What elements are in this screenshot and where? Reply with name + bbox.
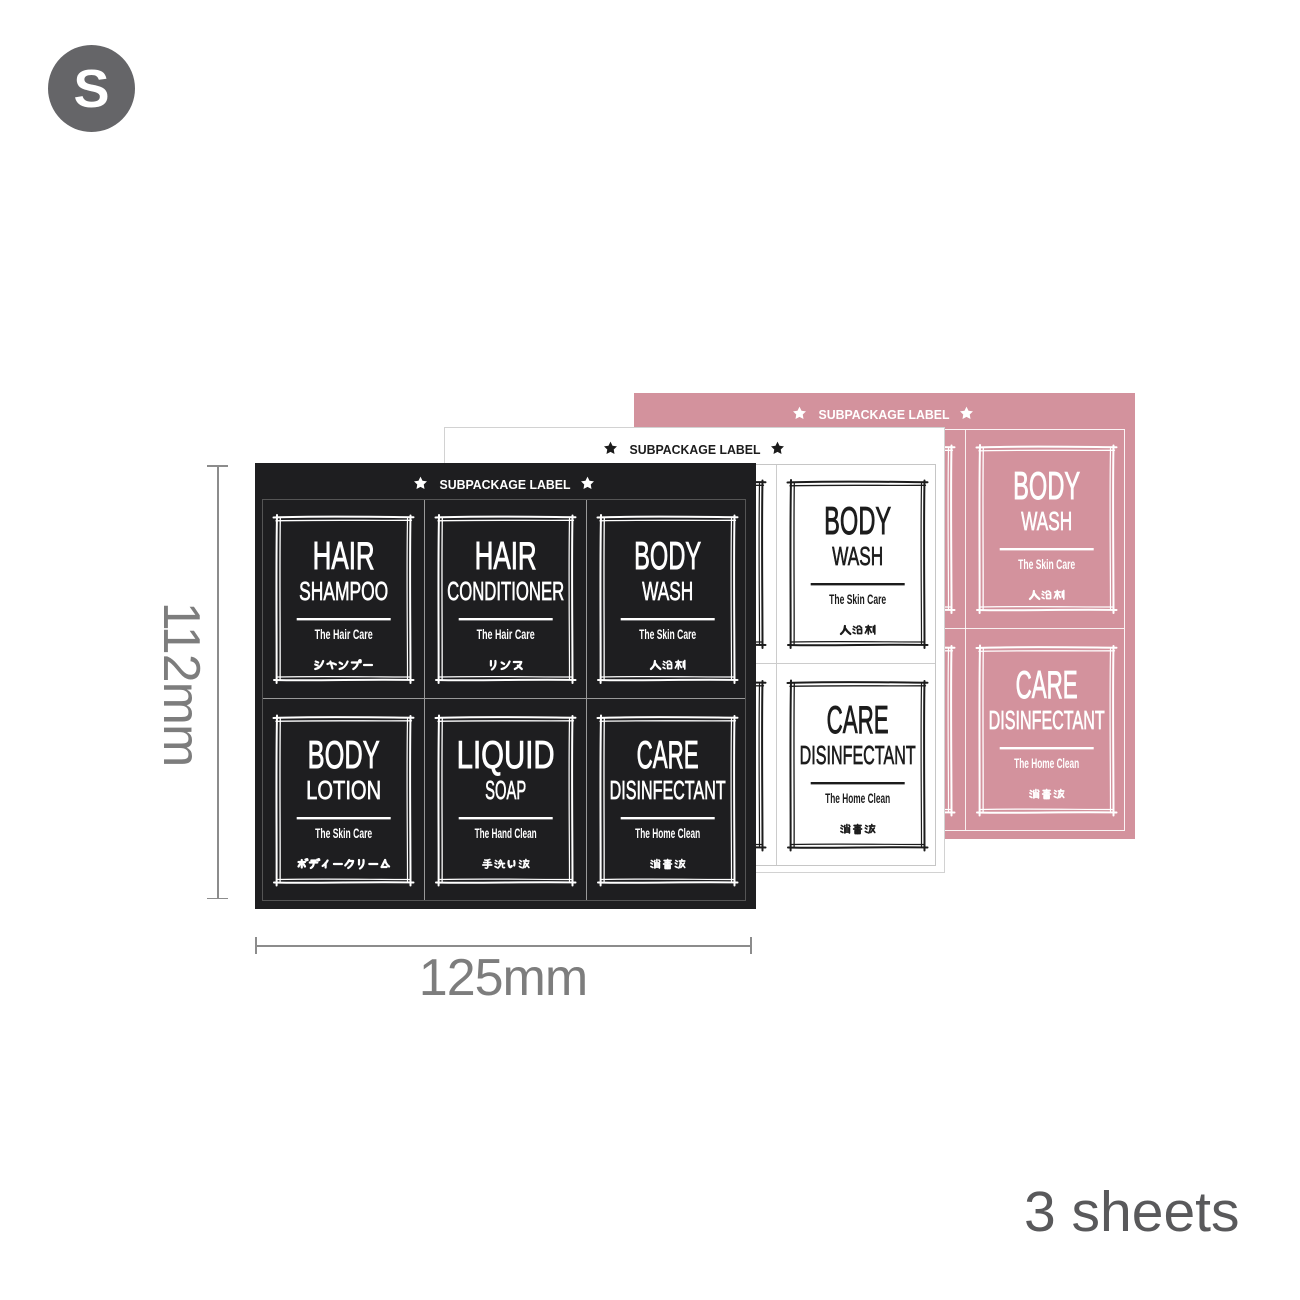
svg-text:CARE: CARE <box>636 734 698 777</box>
svg-text:WASH: WASH <box>1021 506 1072 536</box>
svg-text:The Skin Care: The Skin Care <box>829 592 886 607</box>
svg-text:The Home Clean: The Home Clean <box>1014 756 1079 771</box>
svg-text:SUBPACKAGE LABEL: SUBPACKAGE LABEL <box>630 442 761 457</box>
svg-text:DISINFECTANT: DISINFECTANT <box>609 775 725 805</box>
svg-text:SUBPACKAGE LABEL: SUBPACKAGE LABEL <box>440 477 571 492</box>
svg-text:BODY: BODY <box>824 500 891 543</box>
svg-text:CARE: CARE <box>1015 664 1077 707</box>
svg-text:BODY: BODY <box>308 734 380 777</box>
svg-text:HAIR: HAIR <box>475 535 537 578</box>
svg-text:CONDITIONER: CONDITIONER <box>447 576 564 606</box>
svg-text:BODY: BODY <box>1013 465 1080 508</box>
svg-text:WASH: WASH <box>642 576 693 606</box>
svg-text:LIQUID: LIQUID <box>457 734 555 777</box>
svg-text:BODY: BODY <box>634 535 701 578</box>
svg-text:WASH: WASH <box>832 541 883 571</box>
svg-text:CARE: CARE <box>826 699 888 742</box>
svg-text:The Home Clean: The Home Clean <box>825 791 890 806</box>
svg-text:SHAMPOO: SHAMPOO <box>299 576 388 606</box>
svg-text:SUBPACKAGE LABEL: SUBPACKAGE LABEL <box>819 407 950 422</box>
svg-text:The Home Clean: The Home Clean <box>635 826 700 841</box>
svg-text:The Skin Care: The Skin Care <box>1018 557 1075 572</box>
svg-text:HAIR: HAIR <box>313 535 375 578</box>
svg-text:The Hair Care: The Hair Care <box>477 627 535 642</box>
svg-text:DISINFECTANT: DISINFECTANT <box>799 740 915 770</box>
svg-text:The Skin Care: The Skin Care <box>639 627 696 642</box>
svg-text:DISINFECTANT: DISINFECTANT <box>988 705 1104 735</box>
svg-text:The Skin Care: The Skin Care <box>315 826 372 841</box>
svg-text:The Hand Clean: The Hand Clean <box>475 826 537 841</box>
svg-text:LOTION: LOTION <box>306 775 381 805</box>
svg-text:SOAP: SOAP <box>485 775 526 805</box>
svg-text:The Hair Care: The Hair Care <box>315 627 373 642</box>
